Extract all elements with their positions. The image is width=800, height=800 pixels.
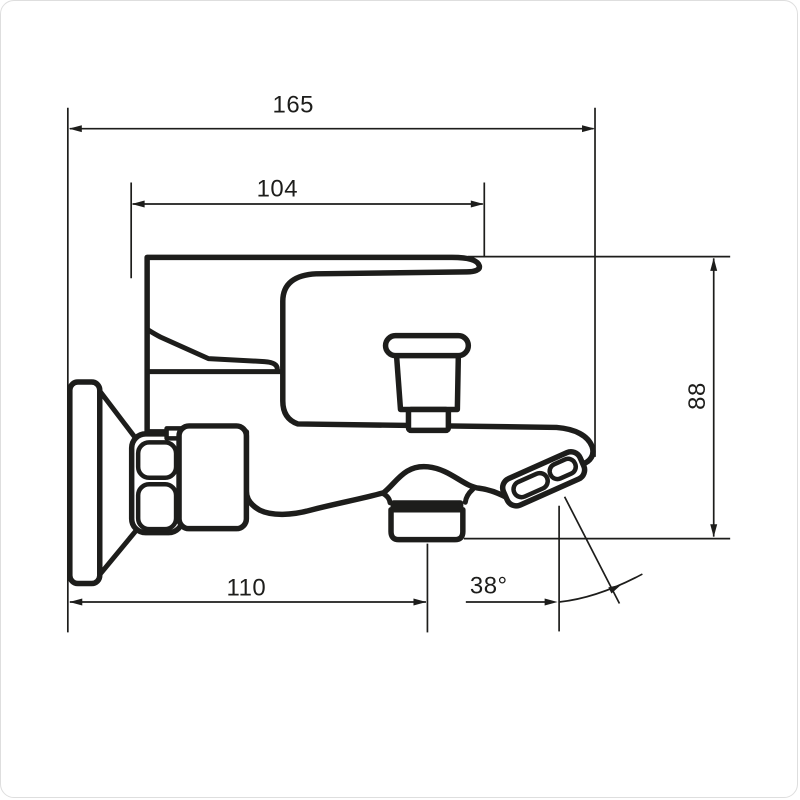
arrowhead: [710, 258, 717, 271]
arrowhead: [69, 599, 82, 606]
dim-88-label: 88: [684, 382, 711, 410]
arrowhead: [582, 125, 595, 132]
technical-drawing: 165 104 88 110 38°: [1, 1, 798, 798]
dim-165-label: 165: [273, 92, 314, 119]
outlet-foot-right: [465, 489, 472, 502]
arrowhead: [132, 201, 145, 208]
angle-arc: [559, 574, 642, 602]
diverter-neck: [408, 409, 448, 430]
drawing-canvas: 165 104 88 110 38°: [0, 0, 798, 798]
dim-104-label: 104: [257, 176, 298, 203]
outlet-spigot: [391, 510, 463, 540]
union-block: [179, 426, 246, 529]
outlet-foot-left: [383, 493, 390, 502]
arrowhead: [413, 599, 426, 606]
angle-annotation-38: 38°: [466, 497, 643, 632]
arrowhead: [545, 599, 558, 606]
wall-plate: [70, 382, 100, 583]
arrowhead: [69, 125, 82, 132]
dim-110-label: 110: [227, 575, 267, 602]
nut-facet-top: [138, 442, 176, 477]
arrowhead: [710, 524, 717, 537]
diverter-body: [397, 355, 459, 409]
faucet-drawing: [70, 257, 593, 583]
arrowhead: [471, 201, 484, 208]
arrowhead: [608, 581, 623, 593]
diverter-cap: [386, 336, 469, 356]
nut-facet-bottom: [138, 484, 176, 529]
dim-38deg-label: 38°: [470, 573, 508, 600]
